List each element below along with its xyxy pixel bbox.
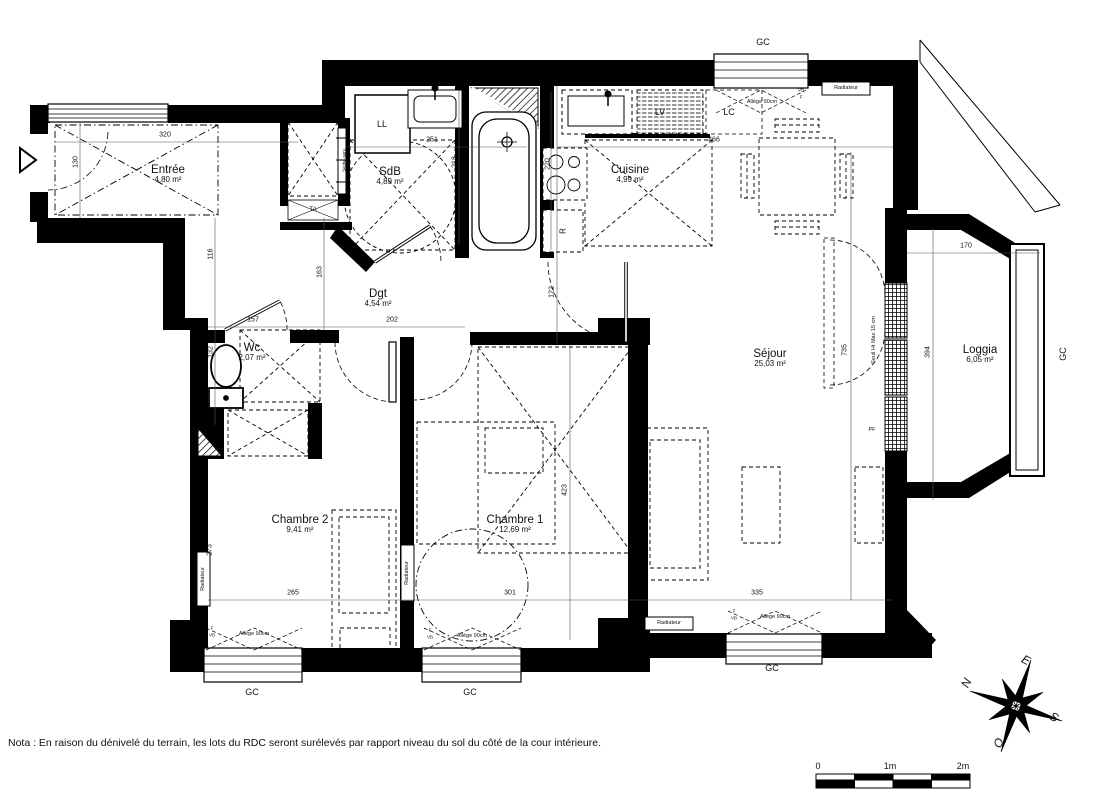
- vb-label-top: VB: [798, 88, 804, 93]
- dim-394: 394: [925, 346, 932, 358]
- room-label-wc: Wc 2,07 m²: [238, 342, 265, 362]
- compass-rose: [970, 660, 1061, 751]
- towel-dryer-label: Sèche-serv.: [342, 148, 347, 172]
- label-fridge: R: [559, 228, 568, 234]
- dim-220: 220: [545, 158, 552, 170]
- gc-label-top: GC: [756, 37, 770, 47]
- dim-130: 130: [73, 156, 80, 168]
- room-label-chambre1: Chambre 1 12,69 m²: [487, 514, 544, 534]
- label-lv: LV: [655, 107, 665, 117]
- washbasin: [408, 85, 462, 128]
- sill-label-sejour: Allège 90cm: [760, 614, 790, 620]
- dim-466: 466: [708, 137, 720, 144]
- window-chambre1: [422, 648, 521, 682]
- sill-label-chambre2: Allège 90cm: [239, 631, 269, 637]
- vb-label-chambre1: VB: [427, 635, 433, 640]
- hall-closet: [288, 122, 338, 196]
- vb-label-sejour: VB: [731, 616, 737, 621]
- vb-label-chambre2: VB: [209, 633, 215, 638]
- hall-storage: [228, 410, 308, 456]
- f-label-chambre2: F: [211, 626, 214, 631]
- dim-170: 170: [960, 243, 972, 250]
- room-label-cuisine: Cuisine 4,99 m²: [611, 164, 649, 184]
- sill-label-chambre1: Allège 90cm: [457, 633, 487, 639]
- kitchen-sink: [562, 90, 632, 134]
- dim-157: 157: [247, 317, 259, 324]
- label-ll: LL: [377, 119, 387, 129]
- entry-arrow: [20, 148, 36, 172]
- dim-273: 273: [207, 544, 214, 556]
- chambre1-clearance: [416, 347, 632, 641]
- threshold-label: Seuil Ht Max 15 cm: [871, 316, 877, 364]
- scale-zero: 0: [815, 761, 820, 771]
- dim-335: 335: [751, 590, 763, 597]
- coffee-table: [742, 467, 780, 543]
- dining-table: [741, 119, 853, 234]
- dim-218: 218: [452, 156, 459, 168]
- sofa: [640, 428, 708, 580]
- dim-202: 202: [386, 317, 398, 324]
- gc-label-chambre1: GC: [463, 687, 477, 697]
- dishwasher: [637, 90, 703, 134]
- window-chambre2: [204, 648, 302, 682]
- dim-116: 116: [208, 248, 215, 259]
- bathtub: [472, 112, 536, 250]
- glazed-bay: [885, 283, 907, 451]
- tv-unit: [855, 467, 883, 543]
- loggia-railing: [1010, 244, 1044, 476]
- dim-163: 163: [317, 266, 324, 278]
- gc-label-loggia: GC: [1058, 347, 1068, 361]
- scale-one: 1m: [884, 761, 897, 771]
- f-label-sejour: F: [733, 609, 736, 614]
- room-label-entree: Entrée 4,80 m²: [151, 164, 185, 184]
- room-label-loggia: Loggia 6,05 m²: [963, 344, 998, 364]
- f-label-top: F: [800, 95, 803, 100]
- dim-735: 735: [842, 344, 849, 356]
- radiator-label-chambre2: Radiateur: [200, 567, 206, 591]
- scale-two: 2m: [957, 761, 970, 771]
- window-entree-top: [48, 104, 168, 122]
- chambre2-bed: [332, 510, 396, 658]
- dim-122: 122: [549, 286, 556, 298]
- f-label-chambre1: F: [429, 628, 432, 633]
- dim-423: 423: [562, 484, 569, 496]
- window-top: [714, 54, 808, 88]
- sdb-clearance: [344, 140, 456, 253]
- cooktop: [543, 148, 587, 200]
- entree-closet: [55, 125, 218, 215]
- gc-label-chambre2: GC: [245, 687, 259, 697]
- radiator-label-sejour: Radiateur: [657, 620, 681, 626]
- dim-320: 320: [159, 132, 171, 139]
- window-sejour: [726, 634, 822, 664]
- room-label-sejour: Séjour 25,03 m²: [753, 348, 786, 368]
- windows: [48, 54, 822, 682]
- kitchen-clearance: [585, 140, 712, 246]
- dim-132: 132: [208, 346, 215, 358]
- scale-bar: [816, 774, 970, 788]
- pf-label: PF: [868, 427, 875, 433]
- radiator-label-chambre1: Radiateur: [404, 561, 410, 585]
- room-label-sdb: SdB 4,89 m²: [376, 166, 403, 186]
- dim-251: 251: [426, 137, 438, 144]
- floor-plan-drawing: [0, 0, 1094, 800]
- floor-plan-canvas: Entrée 4,80 m² SdB 4,89 m² Cuisine 4,99 …: [0, 0, 1094, 800]
- nota-text: Nota : En raison du dénivelé du terrain,…: [8, 737, 601, 749]
- sill-label-top: Allège 90cm: [747, 99, 777, 105]
- gc-label-sejour: GC: [765, 663, 779, 673]
- room-label-dgt: Dgt 4,54 m²: [364, 288, 391, 308]
- radiator-label-top: Radiateur: [834, 85, 858, 91]
- label-ta: TA: [309, 207, 316, 213]
- label-lc: LC: [723, 107, 735, 117]
- neighbour-outline: [920, 40, 1060, 212]
- room-label-chambre2: Chambre 2 9,41 m²: [272, 514, 329, 534]
- dim-301: 301: [504, 590, 516, 597]
- dim-265: 265: [287, 590, 299, 597]
